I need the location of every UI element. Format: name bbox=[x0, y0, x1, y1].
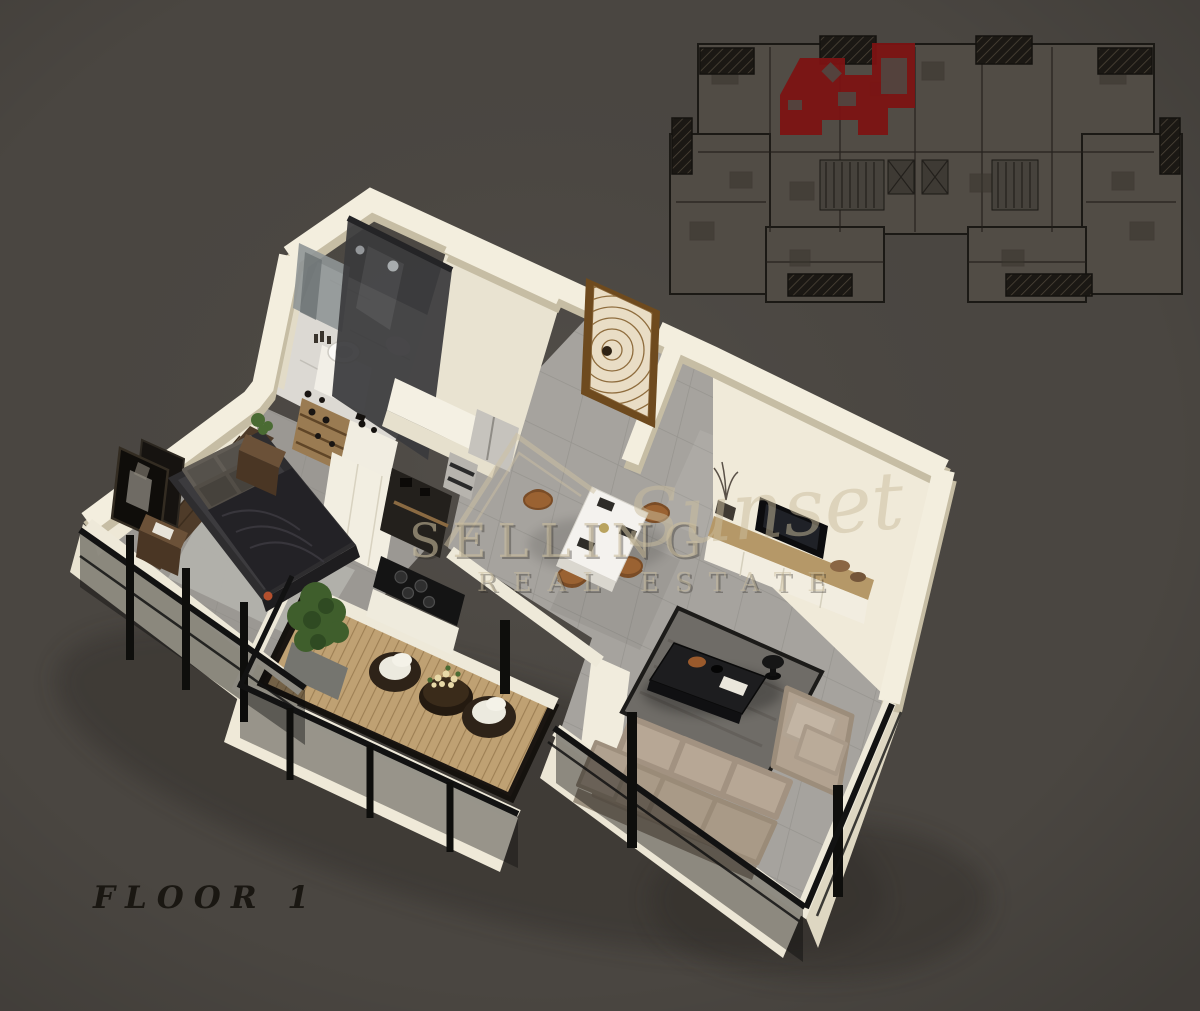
decor-bowl bbox=[850, 572, 866, 582]
floor-lamp bbox=[264, 592, 273, 601]
door-handle bbox=[602, 346, 612, 356]
decor-vase bbox=[711, 665, 723, 673]
wicker-chair bbox=[369, 652, 421, 692]
shower-head bbox=[388, 261, 399, 272]
floor-label: FLOOR 1 bbox=[92, 880, 319, 916]
floor-plan-render-page: SELLING REAL ESTATE SELLING Sunset REAL … bbox=[0, 0, 1200, 1011]
brand-sunset-text: Sunset bbox=[623, 454, 908, 566]
wicker-chair bbox=[462, 696, 516, 738]
floor-plan-render: SELLING REAL ESTATE SELLING Sunset REAL … bbox=[0, 0, 1200, 1011]
brand-realestate-text: REAL ESTATE bbox=[477, 568, 842, 598]
decor-bowl bbox=[688, 657, 706, 668]
